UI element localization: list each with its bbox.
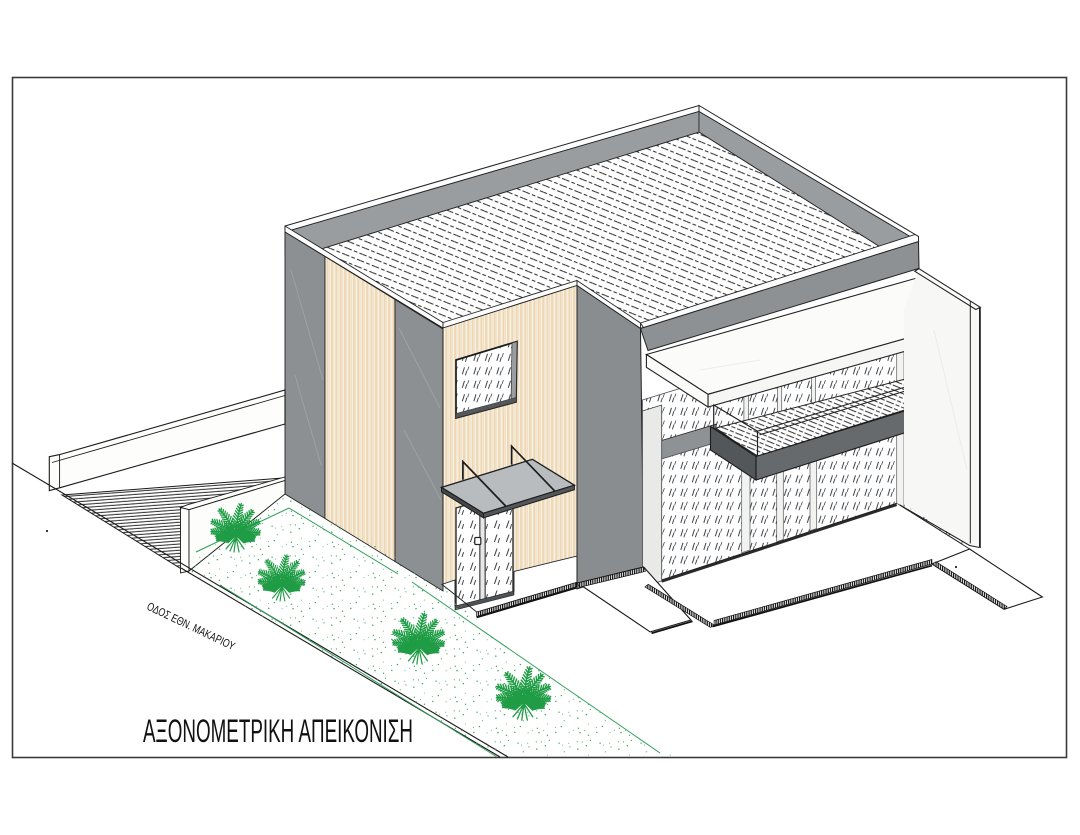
svg-text:ΑΞΟΝΟΜΕΤΡΙΚΗ ΑΠΕΙΚΟΝΙΣΗ: ΑΞΟΝΟΜΕΤΡΙΚΗ ΑΠΕΙΚΟΝΙΣΗ — [143, 713, 413, 749]
